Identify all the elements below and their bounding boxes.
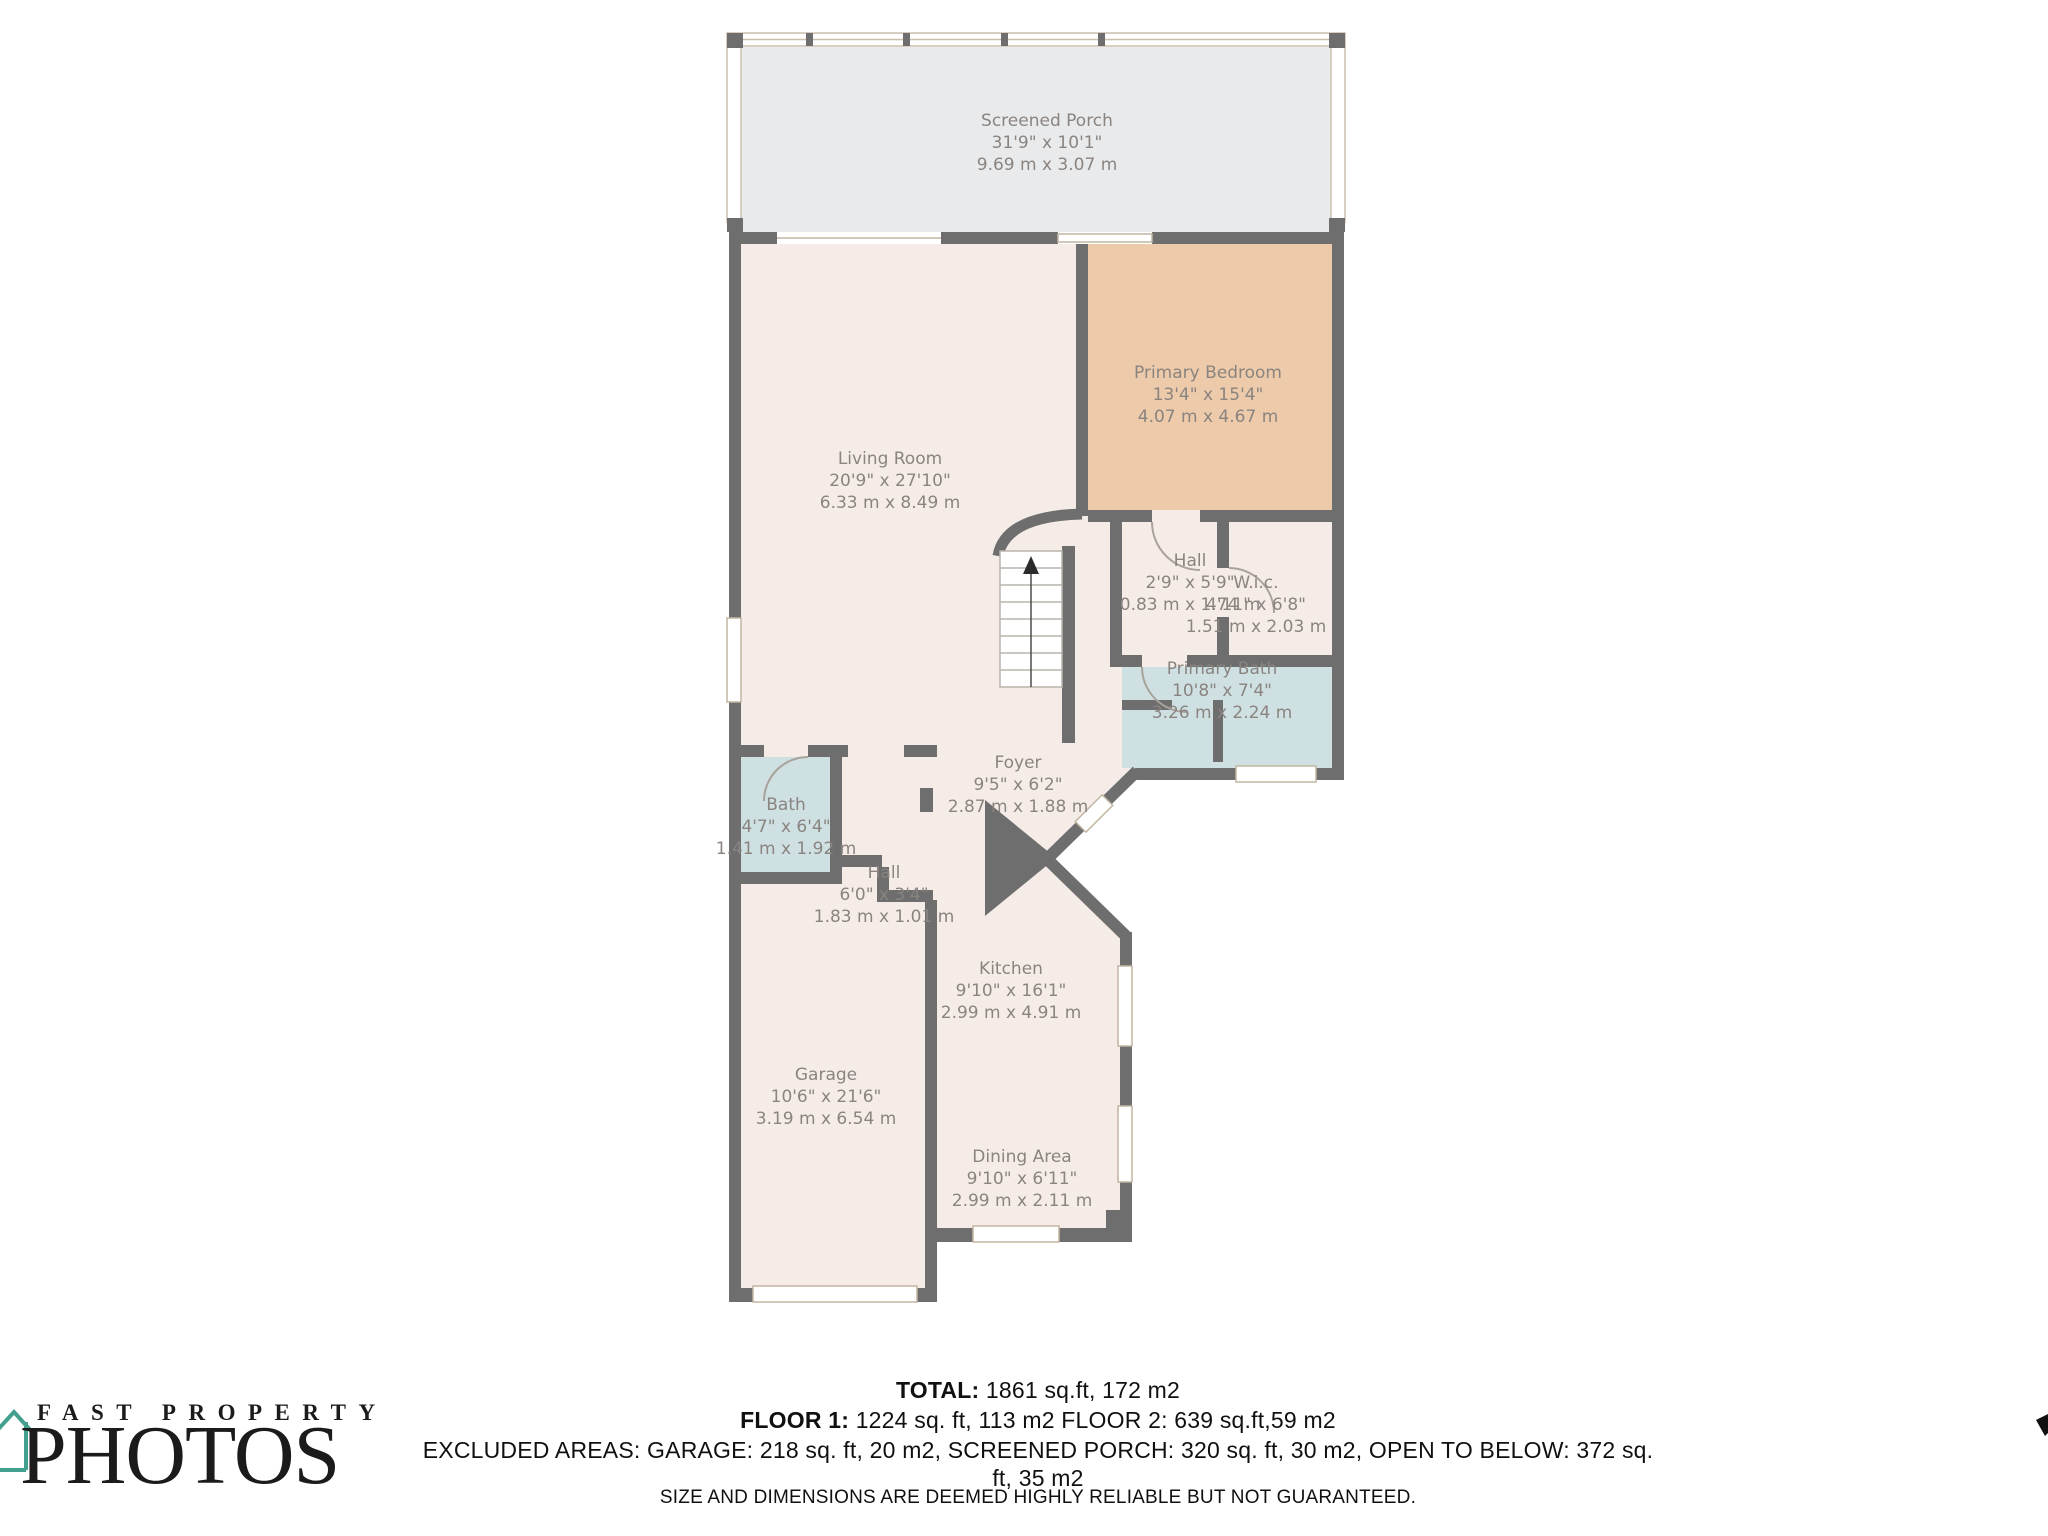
room-name: Hall	[814, 862, 955, 884]
room-dims-m: 4.07 m x 4.67 m	[1134, 406, 1282, 428]
footer-disclaimer-line: SIZE AND DIMENSIONS ARE DEEMED HIGHLY RE…	[413, 1486, 1663, 1510]
floorplan-page: Screened Porch 31'9" x 10'1" 9.69 m x 3.…	[0, 0, 2048, 1536]
room-dims-m: 9.69 m x 3.07 m	[977, 154, 1118, 176]
room-dims-ft: 4'11" x 6'8"	[1186, 594, 1327, 616]
label-hall-lower: Hall 6'0" x 3'4" 1.83 m x 1.01 m	[814, 862, 955, 928]
footer-excluded-line: EXCLUDED AREAS: GARAGE: 218 sq. ft, 20 m…	[413, 1436, 1663, 1492]
label-foyer: Foyer 9'5" x 6'2" 2.87 m x 1.88 m	[948, 752, 1089, 818]
fast-property-photos-logo: FAST PROPERTY PHOTOS	[0, 1398, 400, 1528]
room-dims-m: 2.99 m x 4.91 m	[941, 1002, 1082, 1024]
label-dining-area: Dining Area 9'10" x 6'11" 2.99 m x 2.11 …	[952, 1146, 1093, 1212]
footer-floors-line: FLOOR 1: 1224 sq. ft, 113 m2 FLOOR 2: 63…	[413, 1406, 1663, 1434]
room-dims-ft: 9'10" x 6'11"	[952, 1168, 1093, 1190]
room-name: Dining Area	[952, 1146, 1093, 1168]
room-dims-m: 3.26 m x 2.24 m	[1152, 702, 1293, 724]
edge-mark-icon	[2036, 1414, 2048, 1436]
floor1-label: FLOOR 1:	[740, 1407, 849, 1433]
room-dims-ft: 13'4" x 15'4"	[1134, 384, 1282, 406]
label-kitchen: Kitchen 9'10" x 16'1" 2.99 m x 4.91 m	[941, 958, 1082, 1024]
room-dims-m: 1.51 m x 2.03 m	[1186, 616, 1327, 638]
label-primary-bath: Primary Bath 10'8" x 7'4" 3.26 m x 2.24 …	[1152, 658, 1293, 724]
room-dims-ft: 9'5" x 6'2"	[948, 774, 1089, 796]
room-name: Hall	[1120, 550, 1261, 572]
room-dims-m: 2.99 m x 2.11 m	[952, 1190, 1093, 1212]
room-dims-m: 1.41 m x 1.92 m	[716, 838, 857, 860]
logo-text-bottom: PHOTOS	[20, 1414, 339, 1498]
label-living-room: Living Room 20'9" x 27'10" 6.33 m x 8.49…	[820, 448, 961, 514]
room-name: W.i.c.	[1186, 572, 1327, 594]
label-garage: Garage 10'6" x 21'6" 3.19 m x 6.54 m	[756, 1064, 897, 1130]
room-dims-ft: 9'10" x 16'1"	[941, 980, 1082, 1002]
room-dims-m: 6.33 m x 8.49 m	[820, 492, 961, 514]
footer-total-line: TOTAL: 1861 sq.ft, 172 m2	[413, 1376, 1663, 1404]
total-value: 1861 sq.ft, 172 m2	[986, 1377, 1180, 1403]
room-name: Garage	[756, 1064, 897, 1086]
floor2-value: FLOOR 2: 639 sq.ft,59 m2	[1061, 1407, 1336, 1433]
room-name: Foyer	[948, 752, 1089, 774]
label-wic: W.i.c. 4'11" x 6'8" 1.51 m x 2.03 m	[1186, 572, 1327, 638]
room-name: Living Room	[820, 448, 961, 470]
room-dims-ft: 20'9" x 27'10"	[820, 470, 961, 492]
excluded-areas-text: EXCLUDED AREAS: GARAGE: 218 sq. ft, 20 m…	[423, 1437, 1654, 1491]
room-dims-m: 2.87 m x 1.88 m	[948, 796, 1089, 818]
room-dims-ft: 31'9" x 10'1"	[977, 132, 1118, 154]
label-screened-porch: Screened Porch 31'9" x 10'1" 9.69 m x 3.…	[977, 110, 1118, 176]
disclaimer-text: SIZE AND DIMENSIONS ARE DEEMED HIGHLY RE…	[660, 1487, 1416, 1508]
room-dims-ft: 10'8" x 7'4"	[1152, 680, 1293, 702]
room-name: Screened Porch	[977, 110, 1118, 132]
total-label: TOTAL:	[896, 1377, 979, 1403]
stairs	[1000, 551, 1062, 687]
room-dims-m: 1.83 m x 1.01 m	[814, 906, 955, 928]
room-dims-m: 3.19 m x 6.54 m	[756, 1108, 897, 1130]
room-dims-ft: 6'0" x 3'4"	[814, 884, 955, 906]
room-name: Primary Bath	[1152, 658, 1293, 680]
room-dims-ft: 4'7" x 6'4"	[716, 816, 857, 838]
floor1-value: 1224 sq. ft, 113 m2	[856, 1407, 1055, 1433]
label-bath: Bath 4'7" x 6'4" 1.41 m x 1.92 m	[716, 794, 857, 860]
room-dims-ft: 10'6" x 21'6"	[756, 1086, 897, 1108]
room-name: Kitchen	[941, 958, 1082, 980]
room-name: Bath	[716, 794, 857, 816]
label-primary-bedroom: Primary Bedroom 13'4" x 15'4" 4.07 m x 4…	[1134, 362, 1282, 428]
room-name: Primary Bedroom	[1134, 362, 1282, 384]
